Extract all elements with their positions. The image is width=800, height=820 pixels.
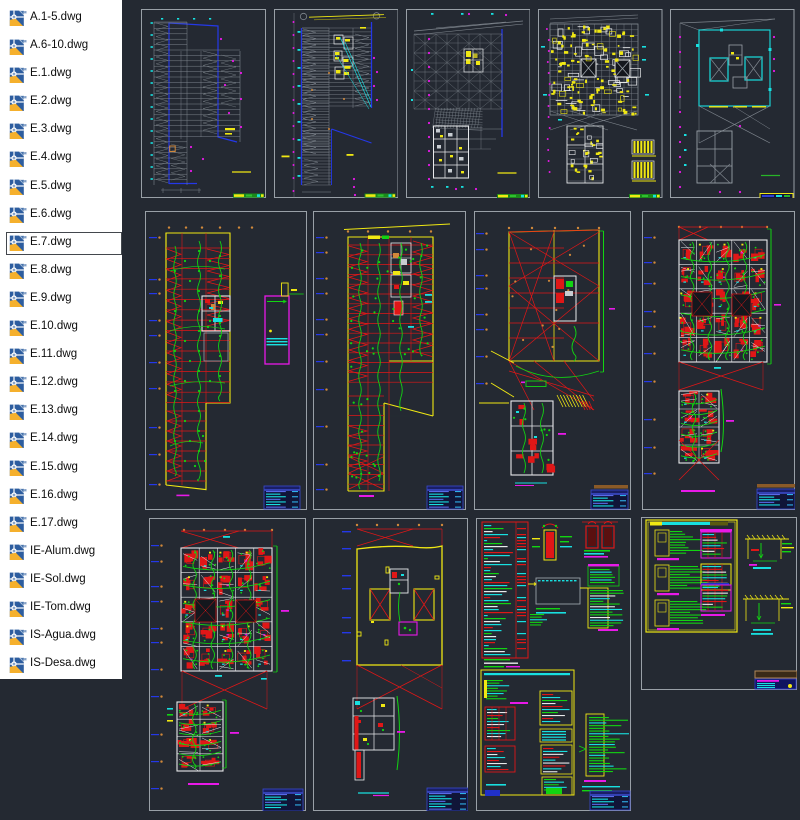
svg-text:TM: TM: [21, 207, 26, 211]
svg-text:TM: TM: [21, 123, 26, 127]
svg-text:TM: TM: [21, 11, 26, 15]
svg-text:TM: TM: [21, 545, 26, 549]
svg-text:TM: TM: [21, 404, 26, 408]
svg-text:TM: TM: [21, 236, 26, 240]
svg-text:TM: TM: [21, 460, 26, 464]
svg-text:TM: TM: [21, 264, 26, 268]
svg-text:TM: TM: [21, 95, 26, 99]
svg-text:TM: TM: [21, 348, 26, 352]
svg-text:TM: TM: [21, 517, 26, 521]
svg-text:TM: TM: [21, 376, 26, 380]
svg-text:TM: TM: [21, 67, 26, 71]
svg-text:TM: TM: [21, 39, 26, 43]
svg-text:TM: TM: [21, 320, 26, 324]
svg-text:TM: TM: [21, 179, 26, 183]
svg-text:TM: TM: [21, 488, 26, 492]
svg-text:TM: TM: [21, 292, 26, 296]
svg-text:TM: TM: [21, 432, 26, 436]
svg-text:TM: TM: [21, 657, 26, 661]
svg-text:TM: TM: [21, 573, 26, 577]
svg-text:TM: TM: [21, 629, 26, 633]
svg-text:TM: TM: [21, 601, 26, 605]
svg-text:TM: TM: [21, 151, 26, 155]
